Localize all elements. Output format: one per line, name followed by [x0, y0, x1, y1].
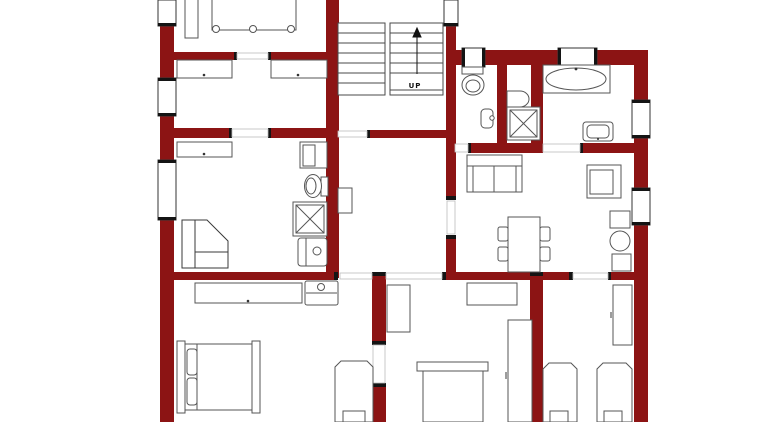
dresser — [195, 283, 302, 303]
shower-stall — [507, 107, 540, 140]
room-mid-left — [177, 60, 327, 78]
stairwell-left-wall — [326, 0, 339, 278]
window — [444, 0, 458, 26]
room-top-left — [185, 0, 296, 38]
double-bed — [417, 362, 488, 422]
toilet — [462, 67, 484, 95]
armchair — [587, 165, 621, 198]
roomA-bottom-wall-left — [174, 52, 237, 60]
roomA-bottom-wall-right — [268, 52, 326, 60]
window — [158, 160, 176, 220]
wall-sink — [481, 109, 494, 128]
wardrobe — [387, 285, 410, 332]
living-bottom-wall-left — [442, 272, 573, 280]
bottom-center-left-wall-upper — [372, 272, 386, 345]
window — [632, 100, 650, 138]
bedroom-bottom-left — [177, 281, 373, 422]
dining-table — [508, 217, 540, 272]
dining-chair — [498, 247, 508, 261]
bottom-center-left-wall-lower — [372, 383, 386, 422]
dining-chair — [540, 227, 550, 241]
hallway — [338, 188, 352, 213]
floor-plan: UP — [0, 0, 768, 422]
roomB-bottom-wall-right — [268, 128, 326, 138]
wall-end-caps — [229, 52, 611, 387]
side-table — [610, 211, 630, 228]
wardrobe — [185, 0, 198, 38]
washer-cabinet — [300, 142, 327, 168]
room-lower-left — [177, 142, 328, 268]
single-bed — [335, 361, 373, 422]
bathroom — [543, 65, 613, 141]
sofa — [467, 155, 522, 192]
bathtub — [543, 65, 610, 93]
dresser — [271, 60, 327, 78]
single-bed — [543, 363, 577, 422]
bedroom-bottom-right — [543, 285, 632, 422]
stairs-up-label: UP — [409, 82, 422, 90]
roomB-bottom-wall-left — [174, 128, 232, 138]
dining-chair — [498, 227, 508, 241]
window — [158, 78, 176, 116]
stairwell-bottom-wall — [367, 130, 447, 138]
wc-divider-wall — [497, 65, 507, 153]
dresser — [177, 60, 232, 78]
floor-plan-drawing: UP — [0, 0, 768, 422]
double-bed — [177, 341, 260, 413]
bath-bottom-wall-left — [468, 143, 531, 153]
window — [158, 0, 176, 26]
dresser — [467, 283, 517, 305]
vanity-sink — [298, 238, 327, 266]
nightstand — [305, 281, 338, 305]
plant — [610, 231, 630, 251]
wc-room — [462, 67, 494, 128]
living-room — [467, 155, 631, 272]
corner-desk — [182, 220, 228, 268]
door-openings — [232, 53, 608, 383]
dresser — [177, 142, 232, 157]
dining-set — [498, 217, 550, 272]
shower-stall — [293, 202, 327, 236]
lower-left-dividing-wall — [160, 272, 338, 280]
dining-chair — [540, 247, 550, 261]
wall-sink — [507, 91, 529, 107]
side-table — [612, 254, 631, 271]
hall-cabinet — [338, 188, 352, 213]
window — [558, 48, 597, 67]
hall-right-wall-lower — [446, 235, 456, 278]
single-bed — [597, 363, 632, 422]
bedroom-bottom-center — [387, 283, 532, 422]
window — [632, 188, 650, 225]
wardrobe — [506, 320, 532, 422]
living-bottom-wall-right — [608, 272, 634, 280]
table — [212, 0, 296, 33]
staircase: UP — [338, 23, 443, 95]
wardrobe — [611, 285, 632, 345]
toilet — [305, 175, 329, 198]
window — [462, 48, 485, 67]
vanity-sink — [583, 122, 613, 141]
bath-bottom-wall-right — [580, 143, 634, 153]
